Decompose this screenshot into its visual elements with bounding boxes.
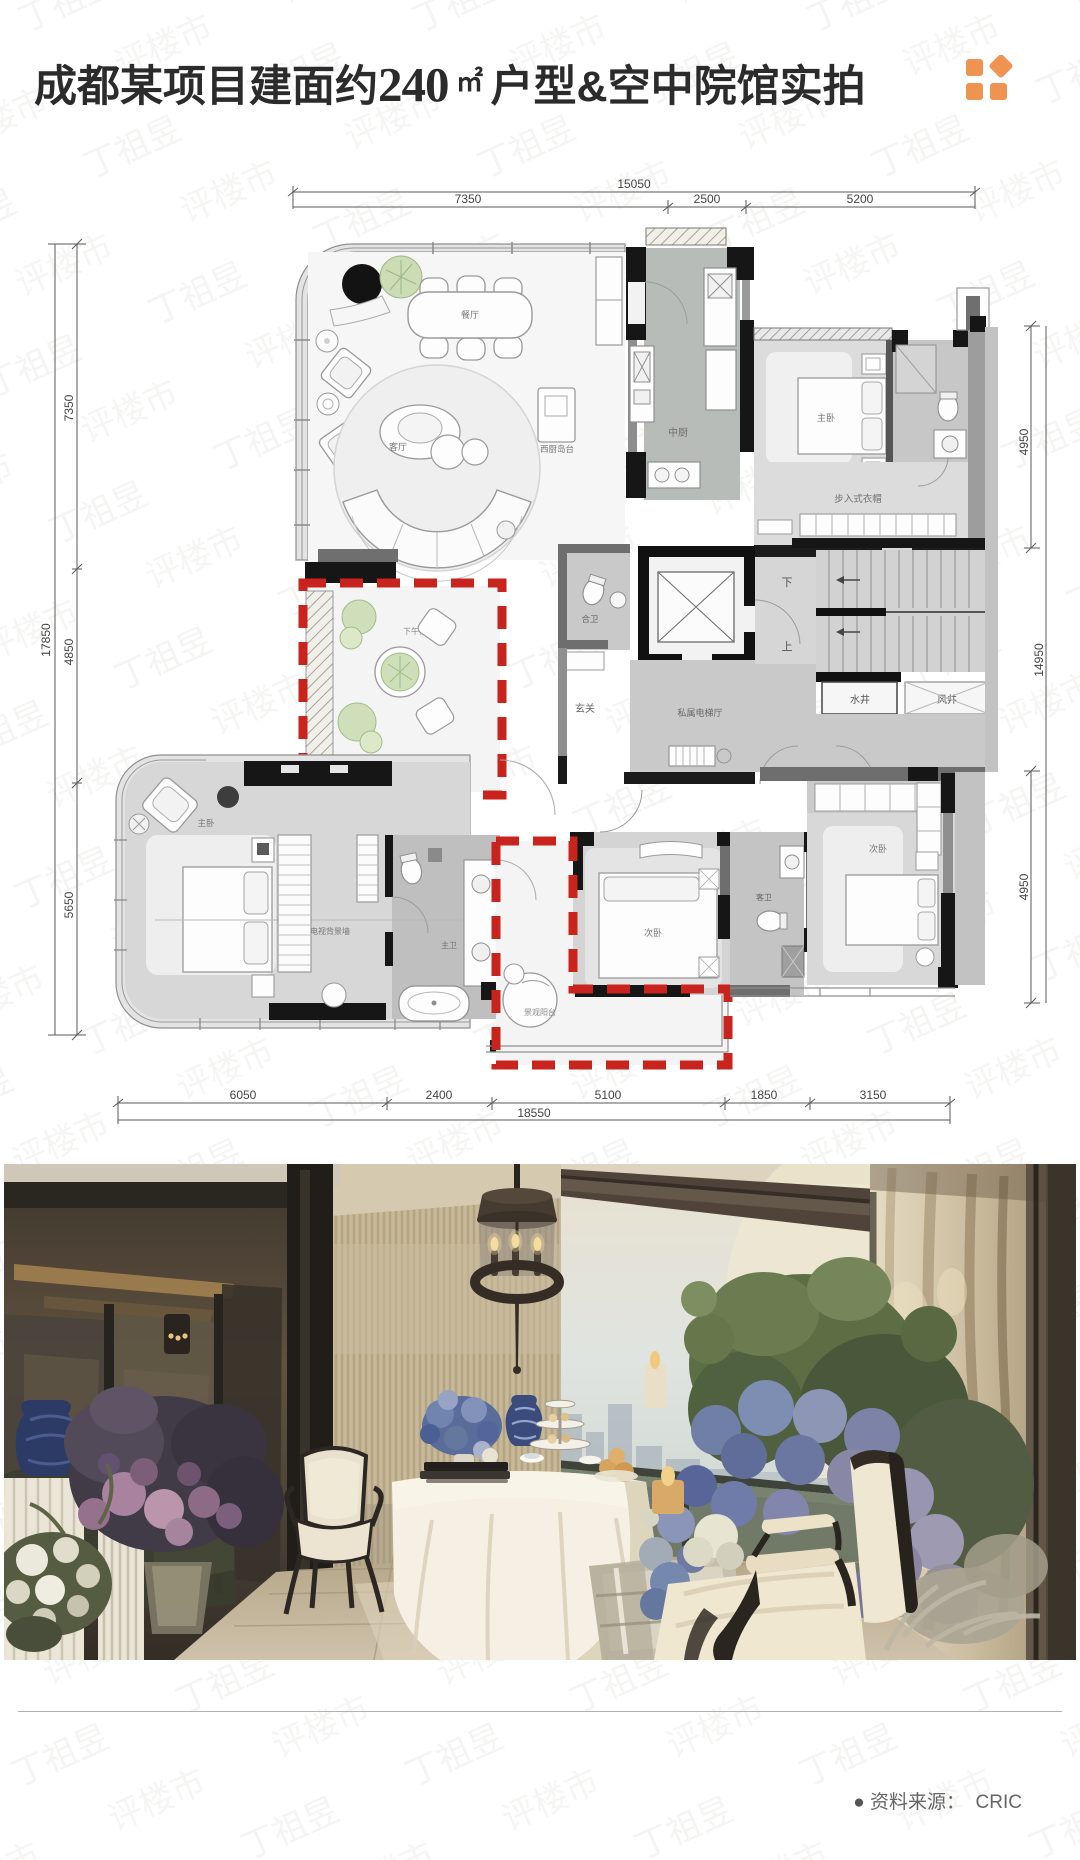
svg-text:5650: 5650 — [62, 891, 76, 918]
svg-text:主卧: 主卧 — [197, 818, 215, 828]
svg-text:西厨岛台: 西厨岛台 — [540, 444, 574, 454]
svg-text:5100: 5100 — [595, 1088, 622, 1102]
svg-text:1850: 1850 — [751, 1088, 778, 1102]
svg-text:4950: 4950 — [1017, 428, 1031, 455]
svg-text:中厨: 中厨 — [668, 426, 688, 439]
svg-text:客卫: 客卫 — [756, 892, 772, 902]
svg-text:15050: 15050 — [617, 177, 651, 191]
svg-text:2400: 2400 — [426, 1088, 453, 1102]
svg-text:4950: 4950 — [1017, 873, 1031, 900]
svg-text:5200: 5200 — [847, 192, 874, 206]
svg-text:主卧: 主卧 — [817, 412, 835, 423]
svg-text:主卫: 主卫 — [441, 940, 457, 950]
svg-text:餐厅: 餐厅 — [461, 309, 479, 320]
svg-text:景观阳台: 景观阳台 — [524, 1007, 556, 1017]
svg-text:3150: 3150 — [860, 1088, 887, 1102]
svg-text:14950: 14950 — [1032, 643, 1046, 677]
svg-text:玄关: 玄关 — [575, 702, 595, 715]
svg-text:客厅: 客厅 — [389, 441, 407, 452]
svg-text:电视背景墙: 电视背景墙 — [310, 926, 350, 936]
svg-text:4850: 4850 — [62, 638, 76, 665]
svg-text:上: 上 — [782, 640, 793, 653]
svg-text:7350: 7350 — [62, 394, 76, 421]
svg-text:次卧: 次卧 — [869, 843, 887, 854]
svg-text:6050: 6050 — [230, 1088, 257, 1102]
svg-text:7350: 7350 — [455, 192, 482, 206]
svg-text:次卧: 次卧 — [644, 927, 662, 938]
svg-text:水井: 水井 — [850, 693, 870, 706]
svg-text:合卫: 合卫 — [581, 614, 599, 624]
svg-text:2500: 2500 — [694, 192, 721, 206]
svg-text:18550: 18550 — [517, 1106, 551, 1120]
svg-text:下: 下 — [782, 577, 793, 589]
svg-text:17850: 17850 — [39, 623, 53, 657]
svg-text:私属电梯厅: 私属电梯厅 — [677, 707, 722, 718]
svg-text:步入式衣帽: 步入式衣帽 — [834, 493, 882, 505]
